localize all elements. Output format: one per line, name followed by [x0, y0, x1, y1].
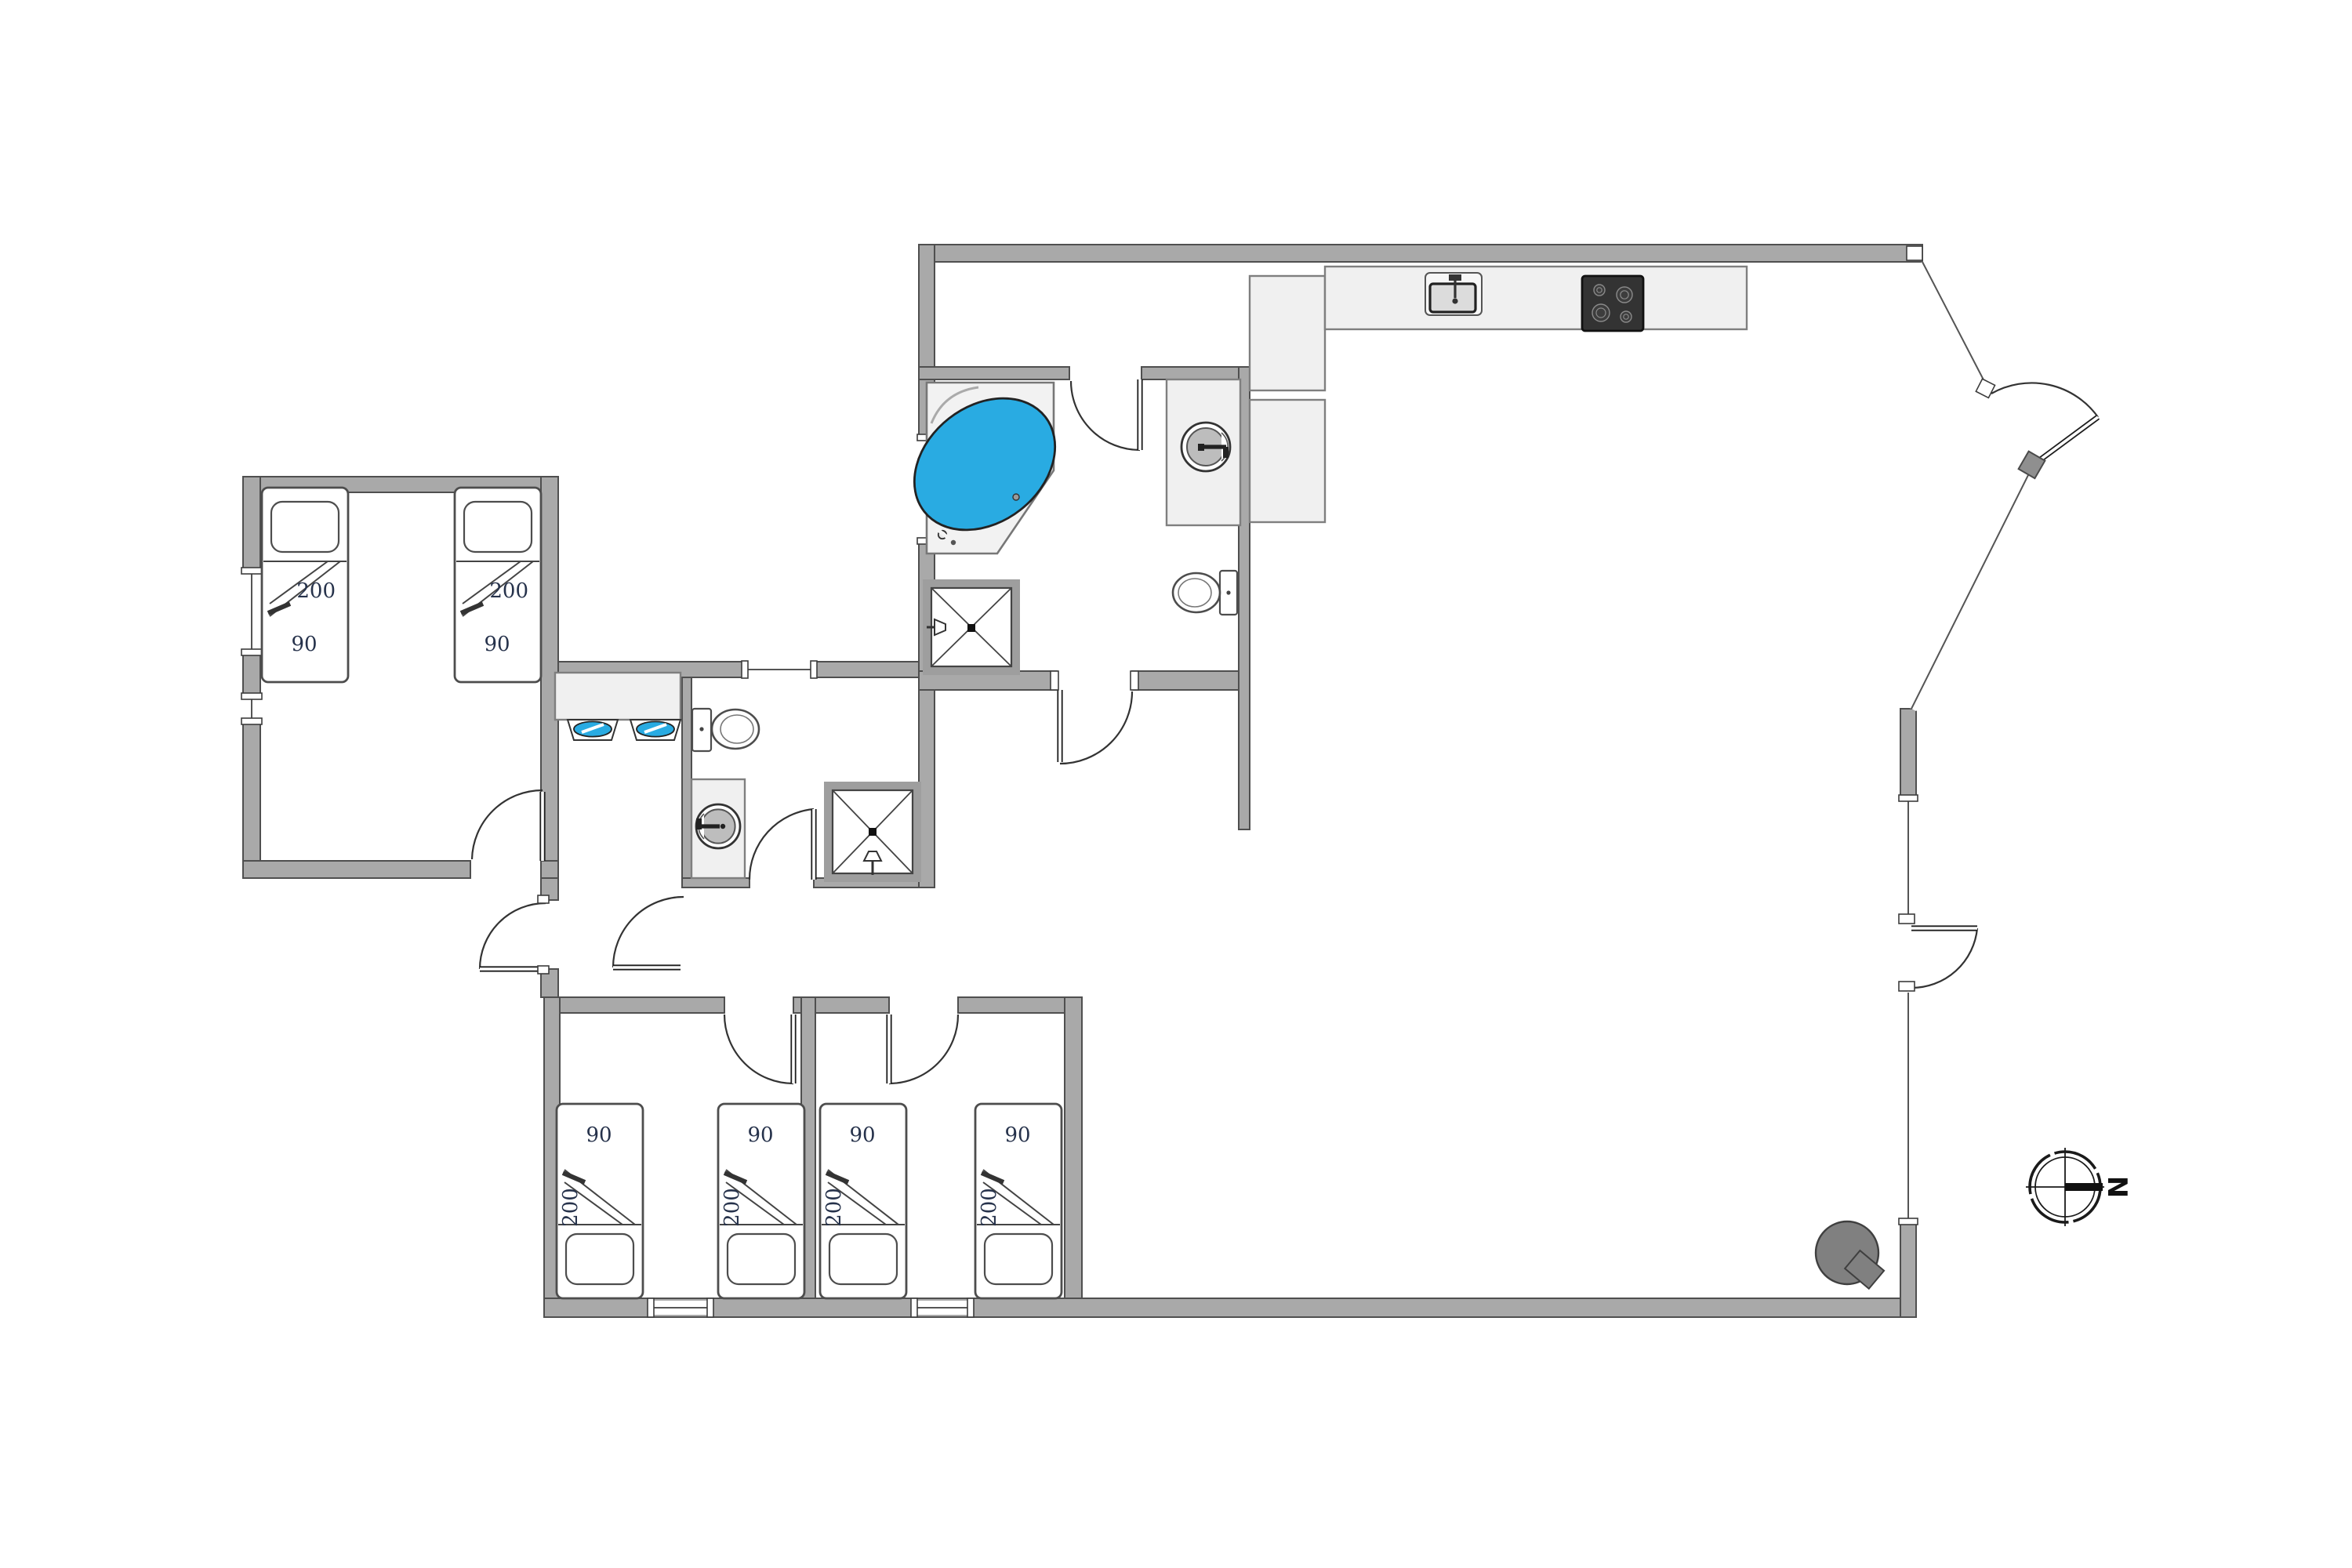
wall-bath2-south [682, 878, 750, 887]
bed-width-label: 90 [291, 633, 317, 656]
wall-top [930, 245, 1922, 262]
wall-east-lower [1900, 1221, 1916, 1317]
vanity-counter [555, 673, 681, 720]
corner-bathtub-icon [888, 371, 1081, 557]
bedroom-nw: 200 90 200 90 [262, 488, 541, 682]
window-facade-mid [1911, 467, 2032, 709]
kitchen-sink-icon [1425, 273, 1482, 315]
tall-cabinet-upper [1250, 276, 1325, 390]
bedroom-nw-door [472, 790, 543, 861]
floor-plan-canvas: 200 90 200 90 90 200 90 200 90 200 90 20… [0, 0, 2352, 1568]
bed-width-label: 90 [586, 1123, 612, 1147]
floor-plan-page: 200 90 200 90 90 200 90 200 90 200 90 20… [0, 0, 2352, 1568]
washing-machine-icon-main [1167, 379, 1240, 525]
bed-length-label: 200 [489, 579, 528, 603]
bed-length-label: 200 [978, 1188, 1001, 1227]
window-sbed-left [648, 1298, 713, 1317]
compass-rose-icon: N [2026, 1148, 2132, 1226]
bed-length-label: 200 [559, 1188, 583, 1227]
window-east-upper [1899, 795, 1918, 914]
bath1-south-door [1051, 671, 1138, 764]
window-facade-upper [1922, 262, 1995, 397]
bed-width-label: 90 [1004, 1123, 1030, 1147]
windows [241, 262, 2032, 1317]
shower-stall-icon-small [828, 786, 917, 878]
sbed-right-door [889, 1014, 958, 1083]
toilet-icon-small [692, 709, 759, 751]
bed-width-label: 90 [484, 633, 510, 656]
tall-cabinet-lower [1250, 400, 1325, 522]
walls [243, 245, 1922, 1317]
bath1-north-door [1071, 379, 1140, 450]
bed-width-label: 90 [747, 1123, 773, 1147]
wood-stove-icon [1816, 1221, 1884, 1289]
bed-length-label: 200 [296, 579, 336, 603]
compass-north-label: N [2101, 1176, 2132, 1198]
wall-sblock-top [544, 997, 724, 1013]
hall-door [613, 897, 684, 967]
bedroom-s-right: 90 200 90 200 [820, 1104, 1062, 1298]
window-bedroom-nw-2 [241, 693, 262, 724]
wall-bath1-north [919, 367, 1069, 379]
double-washbasin-icon [555, 673, 681, 740]
wall-east-upper [1900, 709, 1916, 800]
window-vanity-north [742, 661, 817, 678]
cooktop-icon [1582, 276, 1643, 331]
bathroom-main [888, 371, 1240, 671]
wall-bedroom-nw-bottom [243, 861, 470, 878]
wall-bath2-west [682, 677, 691, 887]
entrance-door [1991, 383, 2098, 478]
kitchen [1250, 267, 1747, 522]
kitchen-counter [1325, 267, 1747, 329]
compass-north-pointer [2065, 1183, 2103, 1191]
window-bedroom-nw-1 [241, 568, 262, 655]
toilet-icon-main [1173, 571, 1237, 615]
window-sbed-right [911, 1298, 974, 1317]
shower-stall-icon-main [927, 583, 1016, 671]
bathroom-small [555, 673, 917, 878]
wall-bedroom-nw-left [243, 721, 260, 878]
wall-bottom [544, 1298, 1915, 1317]
bath2-door [750, 809, 814, 880]
terrace-door-east [1899, 914, 1977, 991]
bedroom-s-left: 90 200 90 200 [557, 1104, 804, 1298]
bed-length-label: 200 [720, 1188, 744, 1227]
bed-length-label: 200 [822, 1188, 846, 1227]
side-door-west [480, 895, 549, 974]
window-east-mid [1899, 993, 1918, 1225]
washing-machine-icon-small [691, 779, 745, 878]
bed-width-label: 90 [849, 1123, 875, 1147]
sbed-left-door [724, 1014, 793, 1083]
living-room [1816, 1221, 1884, 1289]
wall-sblock-right [1065, 997, 1082, 1317]
